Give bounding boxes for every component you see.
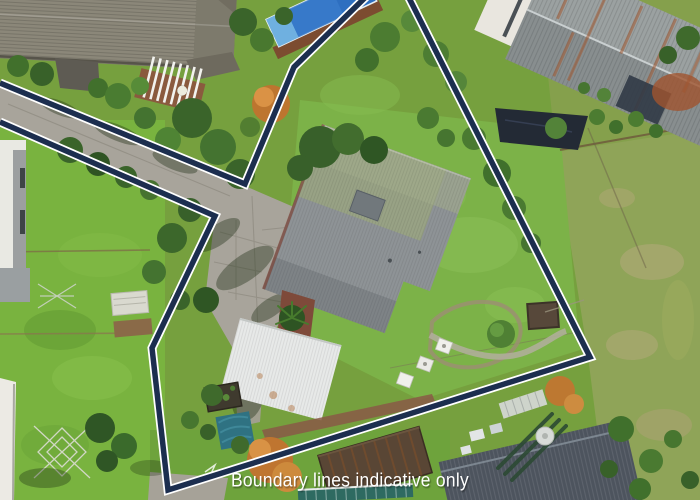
bench — [113, 318, 152, 337]
disclaimer: Boundary lines indicative only Boundary … — [231, 470, 470, 494]
carport — [0, 268, 30, 302]
garden-square — [527, 302, 559, 329]
aerial-photo: Boundary lines indicative only Boundary … — [0, 0, 700, 500]
aerial-photo-canvas: Boundary lines indicative only Boundary … — [0, 0, 700, 500]
disclaimer-text: Boundary lines indicative only — [231, 470, 469, 492]
bottomleft-building — [0, 378, 16, 500]
left-edge-house — [0, 140, 30, 302]
